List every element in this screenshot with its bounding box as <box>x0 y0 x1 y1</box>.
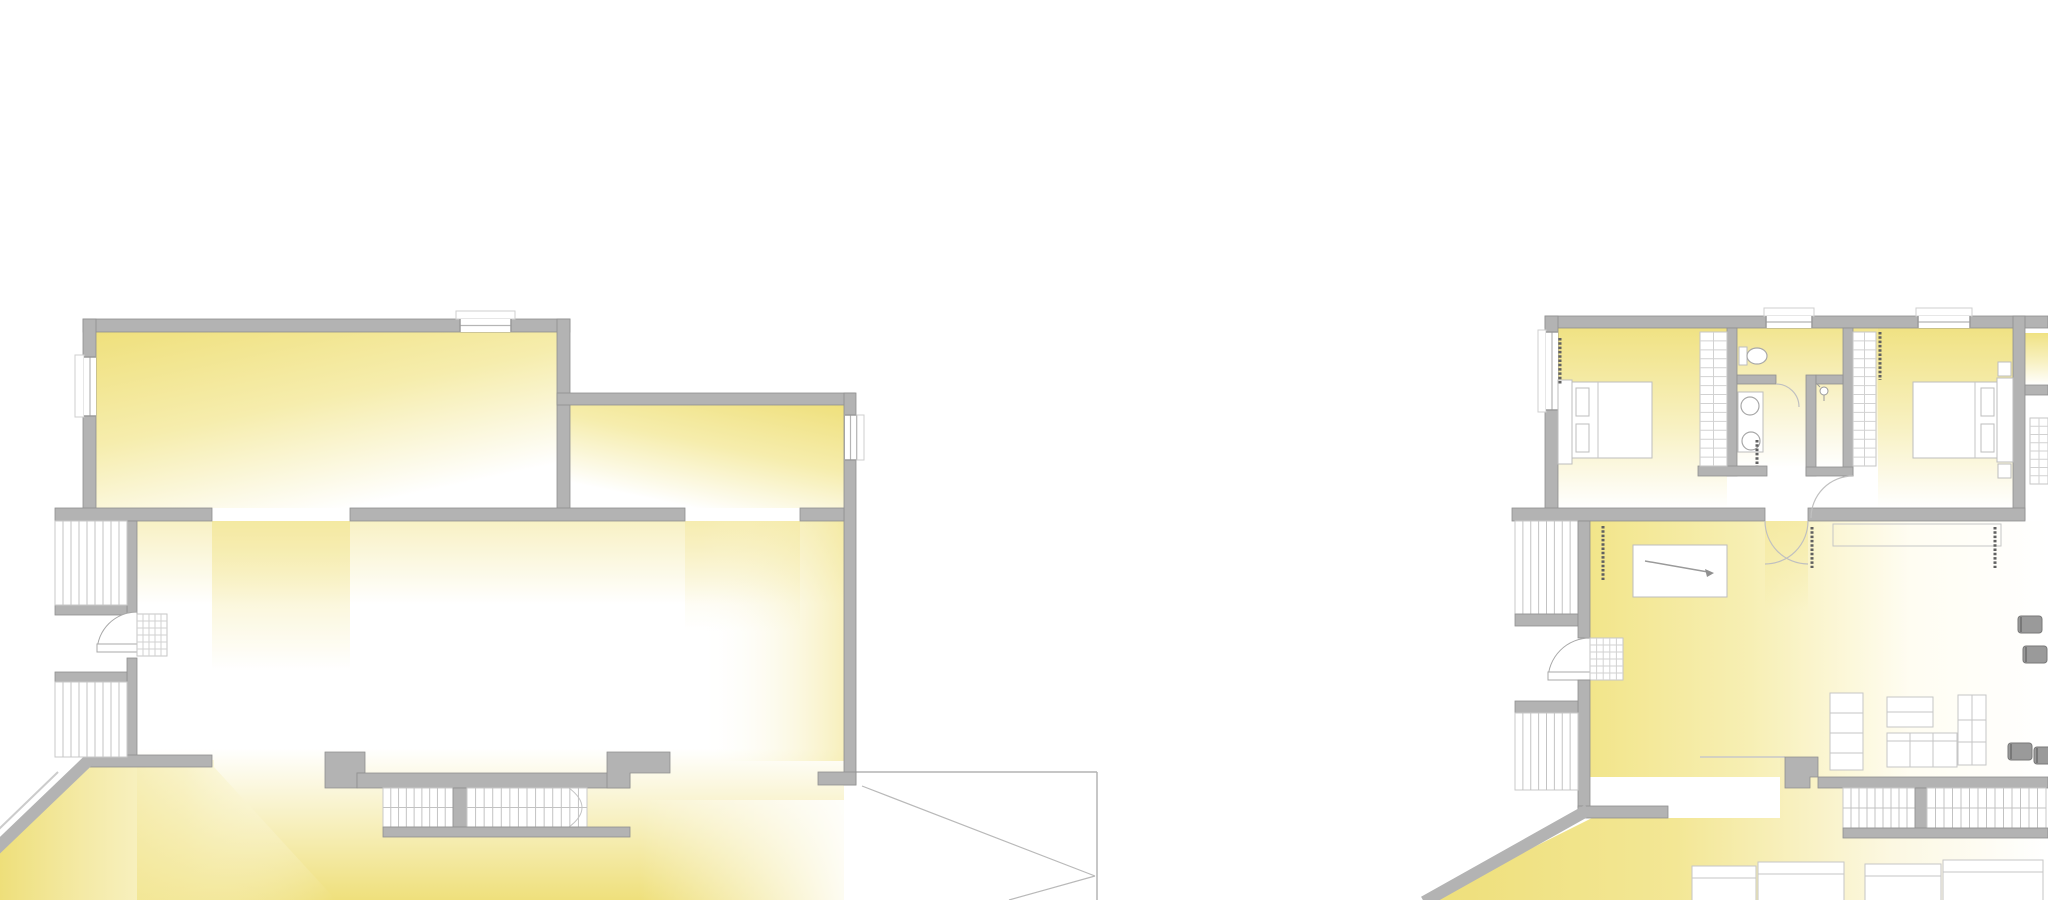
bed-2-headboard <box>1997 378 2013 462</box>
wall-stairs1-bottom <box>55 605 127 615</box>
floor-plan-sheet <box>0 0 2048 900</box>
window-right <box>845 415 856 460</box>
wall-mid-c <box>800 508 844 521</box>
bed-2-nightstand-b <box>1998 464 2011 478</box>
bottom-right-whiteout <box>640 800 844 900</box>
closet-shelves-2 <box>1853 332 1876 466</box>
dining-chair <box>2023 646 2047 663</box>
light-shaft-door <box>1765 521 1808 611</box>
stair-divider <box>1915 788 1927 828</box>
room-upper-left-fill <box>96 331 557 508</box>
wall-stairs1-bottom <box>1515 614 1578 626</box>
floor-plan-right <box>1424 308 2048 900</box>
stair-flight-right <box>1927 788 2046 828</box>
light-shaft-right <box>685 521 800 631</box>
closet-shelves-1 <box>1700 332 1727 466</box>
floor-plan-drawing <box>0 0 2048 900</box>
wall-mid-a <box>55 508 212 521</box>
side-room-fill <box>2025 333 2048 385</box>
wall-bottom-left <box>1578 806 1668 818</box>
wall-left-upper <box>83 319 96 515</box>
stair-top-wall <box>357 773 630 788</box>
wall-stairs2-top <box>1515 701 1578 713</box>
couch-outline <box>1943 860 2043 900</box>
wall-bath-bottom-1 <box>1698 466 1767 476</box>
wall-step-divider <box>557 319 570 514</box>
exterior-stairs-upper <box>1515 521 1578 614</box>
stair-flight-left <box>1843 788 1915 828</box>
door-mat <box>1590 638 1623 680</box>
window-sill-top <box>456 311 515 319</box>
terrace-diagonal-1 <box>862 786 1095 876</box>
wall-stairs-side-up <box>1578 521 1590 638</box>
bed-1-pillow-b <box>1576 424 1589 452</box>
window-top-2 <box>1918 316 1970 328</box>
room-upper-right-fill <box>570 405 844 508</box>
window-top-1 <box>1766 316 1812 328</box>
window-sill-2 <box>1916 308 1972 316</box>
exterior-stairs-lower <box>55 682 127 757</box>
dining-chair <box>2034 747 2048 764</box>
wall-wc-stub <box>1737 375 1776 384</box>
dining-chair <box>2008 743 2032 760</box>
wall-right-stub <box>2025 385 2048 395</box>
door-mat <box>137 614 167 656</box>
wall-bath-mid <box>1806 375 1816 476</box>
wall-bath-bottom-2 <box>1806 467 1853 476</box>
wall-stairs2-top <box>55 672 127 682</box>
wall-closet-2 <box>1843 328 1853 476</box>
window-left <box>1546 332 1558 410</box>
wall-mid-right <box>1808 508 2025 521</box>
bed-2-pillow-b <box>1981 424 1994 452</box>
wall-right-foot <box>818 772 856 785</box>
bed-1-headboard <box>1558 380 1572 464</box>
exterior-stairs-upper <box>55 521 127 605</box>
window-sill-right <box>857 415 864 460</box>
exterior-stairs-lower <box>1515 713 1578 790</box>
sink-1 <box>1741 397 1759 415</box>
toilet-bowl <box>1747 348 1767 364</box>
shelf-tall <box>1958 695 1986 765</box>
couch-outline <box>1865 864 1941 900</box>
stair-bottom-wall <box>383 827 630 837</box>
floor-plan-left <box>0 311 1097 900</box>
bed-2-pillow-a <box>1981 388 1994 416</box>
sideboard <box>1887 697 1933 727</box>
toilet-tank <box>1739 347 1747 365</box>
game-table <box>1633 545 1727 597</box>
sofa <box>1887 733 1957 767</box>
light-shaft-left <box>212 521 350 671</box>
bed-1-pillow-a <box>1576 388 1589 416</box>
entry-door <box>97 612 137 652</box>
wall-shower-stub <box>1816 375 1843 384</box>
wall-stairs-side-low <box>127 658 137 758</box>
side-door <box>1548 638 1590 680</box>
stair-flight-left <box>383 788 453 827</box>
wall-stairs-side-up <box>127 521 137 620</box>
couch-outline <box>1692 866 1756 900</box>
bed-2-nightstand-a <box>1998 362 2011 376</box>
stair-bottom-wall <box>1843 828 2048 838</box>
dining-chair <box>2018 616 2042 633</box>
window-sill-1 <box>1764 308 1814 316</box>
window-top <box>460 319 511 332</box>
closet-shelves-side <box>2030 418 2048 484</box>
window-sill-left <box>1538 330 1546 412</box>
window-sill-left <box>75 355 84 417</box>
couch-outline <box>1758 862 1844 900</box>
wall-stairs-side-low <box>1578 680 1590 808</box>
wall-mid-left <box>1512 508 1765 521</box>
shelf-unit <box>1830 693 1863 770</box>
wall-top-2 <box>557 393 855 405</box>
wall-right <box>2013 316 2025 520</box>
wall-closet-1 <box>1727 328 1737 476</box>
wall-mid-b <box>350 508 685 521</box>
terrace-diagonal-2 <box>1009 876 1095 900</box>
stair-flight-right <box>467 788 587 827</box>
stair-divider <box>453 788 467 827</box>
stair-top-wall <box>1818 777 2048 788</box>
window-left <box>84 357 96 416</box>
